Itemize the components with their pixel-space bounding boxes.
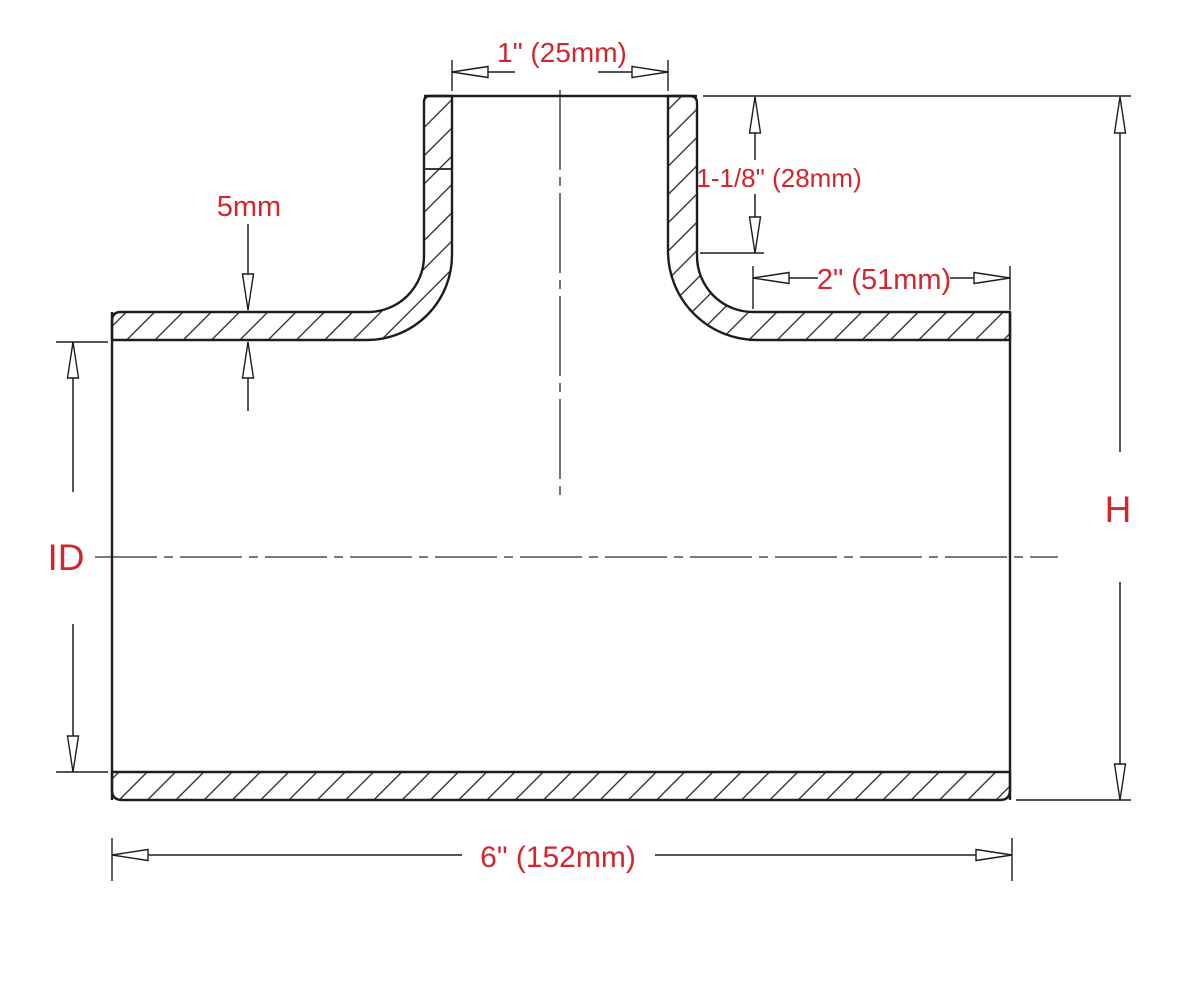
arrowhead-left	[452, 67, 488, 78]
arrowhead-left	[112, 850, 148, 861]
dim-overall-length: 6" (152mm)	[112, 838, 1012, 881]
arrowhead-up	[1115, 97, 1126, 133]
height-label: H	[1105, 489, 1132, 530]
arrowhead-up	[68, 342, 79, 378]
arrowhead-down	[68, 736, 79, 772]
dim-height: H	[703, 96, 1131, 800]
arrowhead-up	[750, 97, 761, 133]
branch-width-label: 1" (25mm)	[497, 37, 627, 68]
arrowhead-up	[243, 342, 254, 378]
dim-branch-width: 1" (25mm)	[452, 37, 668, 91]
dim-right-shoulder: 2" (51mm)	[753, 264, 1010, 310]
inner-diameter-label: ID	[48, 537, 85, 578]
arrowhead-right	[974, 273, 1010, 284]
overall-length-label: 6" (152mm)	[480, 841, 636, 874]
upper-right-wall-section	[668, 96, 1010, 340]
arrowhead-right	[976, 850, 1012, 861]
right-shoulder-label: 2" (51mm)	[817, 264, 951, 296]
t-coupler-section-drawing: 1" (25mm) 1-1/8" (28mm) 2" (51mm) 5mm I	[0, 0, 1197, 1002]
arrowhead-down	[243, 274, 254, 310]
arrowhead-down	[1115, 764, 1126, 800]
bottom-wall-section	[112, 772, 1010, 800]
drawing-canvas: 1" (25mm) 1-1/8" (28mm) 2" (51mm) 5mm I	[0, 0, 1197, 1002]
upper-left-wall-section	[112, 96, 452, 340]
arrowhead-left	[753, 273, 789, 284]
wall-thickness-label: 5mm	[217, 191, 281, 223]
branch-depth-label: 1-1/8" (28mm)	[696, 163, 861, 193]
arrowhead-down	[750, 217, 761, 253]
arrowhead-right	[632, 67, 668, 78]
dim-branch-depth: 1-1/8" (28mm)	[696, 97, 861, 253]
dim-wall-thickness: 5mm	[217, 191, 281, 411]
